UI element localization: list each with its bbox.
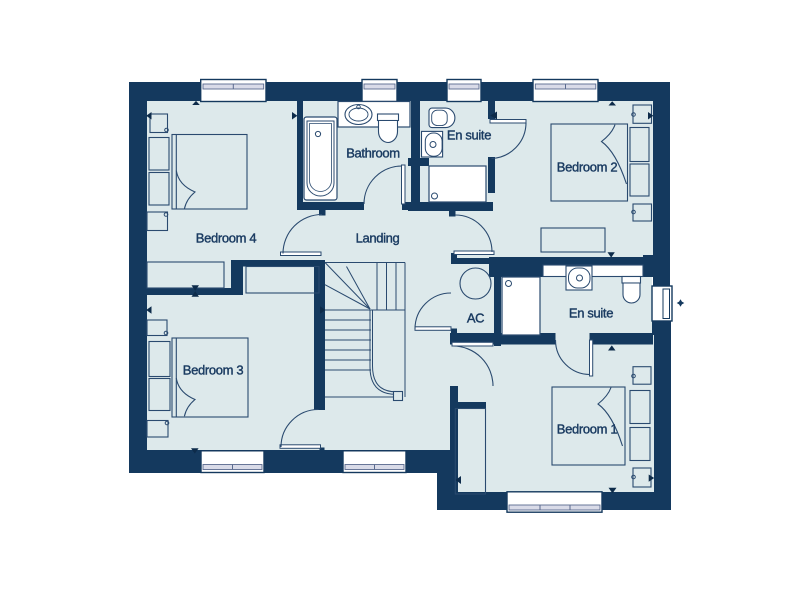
svg-text:En suite: En suite (447, 128, 491, 143)
svg-text:Bedroom 1: Bedroom 1 (557, 421, 618, 436)
svg-text:Bedroom 3: Bedroom 3 (183, 362, 244, 377)
svg-text:AC: AC (467, 310, 484, 325)
svg-text:Bedroom 4: Bedroom 4 (196, 231, 257, 246)
svg-text:Bedroom 2: Bedroom 2 (557, 160, 618, 175)
svg-text:Landing: Landing (356, 230, 400, 245)
svg-text:En suite: En suite (569, 305, 613, 320)
svg-text:Bathroom: Bathroom (346, 145, 400, 160)
